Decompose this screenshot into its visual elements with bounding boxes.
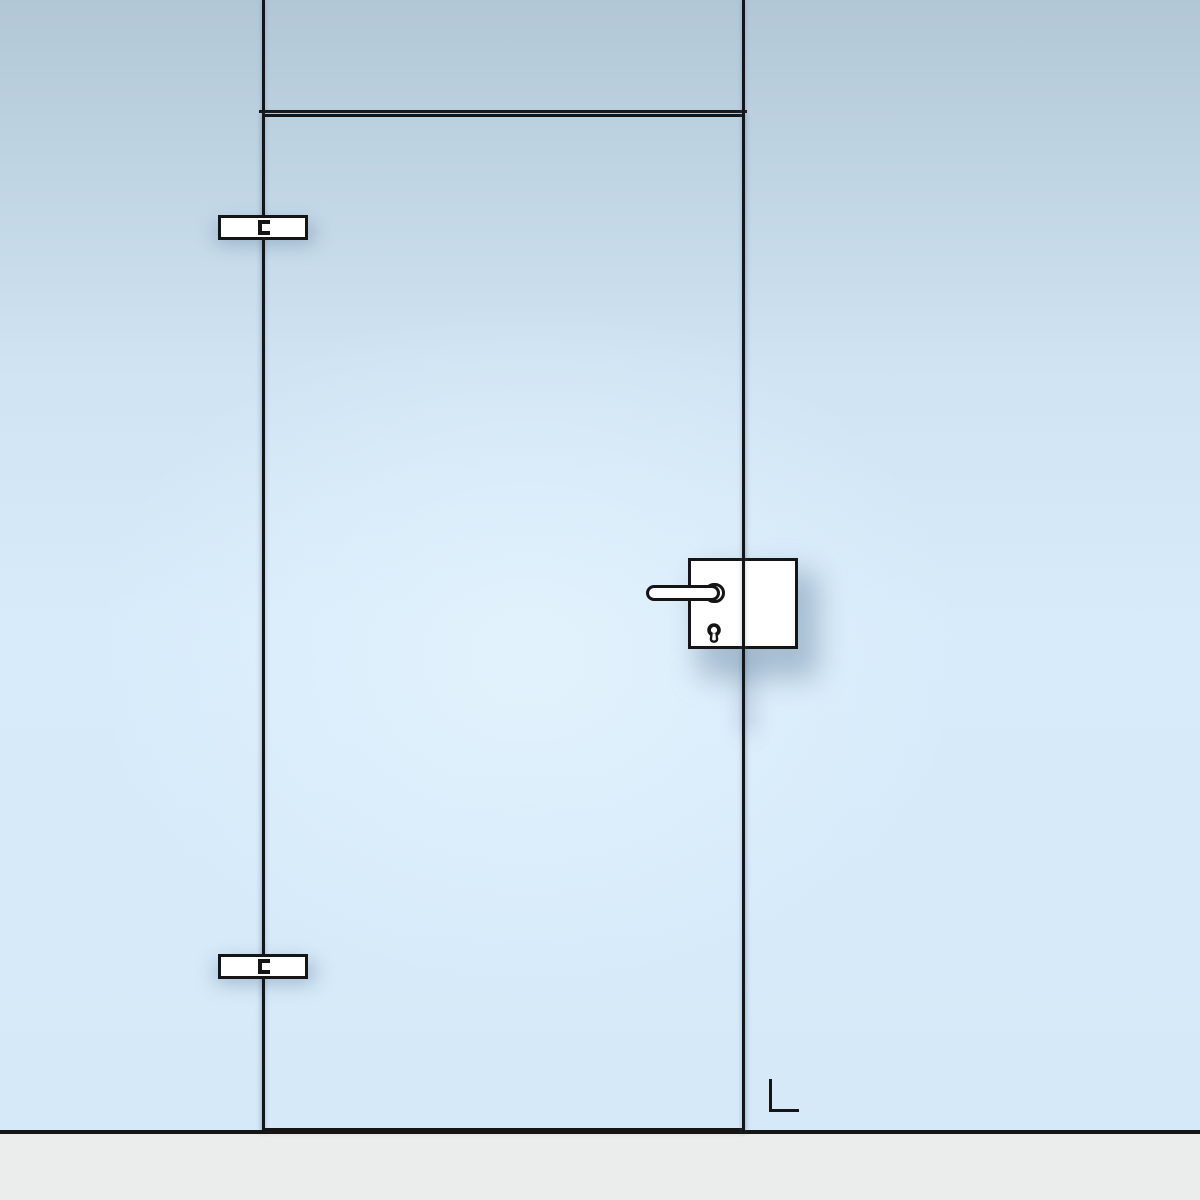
floor — [0, 1134, 1200, 1200]
hinge-top[interactable] — [218, 215, 308, 240]
door-configurator-preview — [0, 0, 1200, 1200]
hinge-icon — [258, 959, 270, 975]
right-joint-line — [742, 0, 746, 1133]
din-mark-vertical — [769, 1079, 773, 1112]
hinge-icon — [258, 220, 270, 236]
hinge-bottom[interactable] — [218, 954, 308, 979]
din-left-mark — [769, 1079, 801, 1113]
floor-line — [0, 1130, 1200, 1134]
door-leaf[interactable] — [262, 114, 745, 1131]
lever-handle-icon[interactable] — [646, 585, 720, 602]
din-mark-horizontal — [769, 1109, 799, 1113]
keyhole-icon — [701, 620, 727, 648]
transom-joint-line — [259, 110, 747, 114]
